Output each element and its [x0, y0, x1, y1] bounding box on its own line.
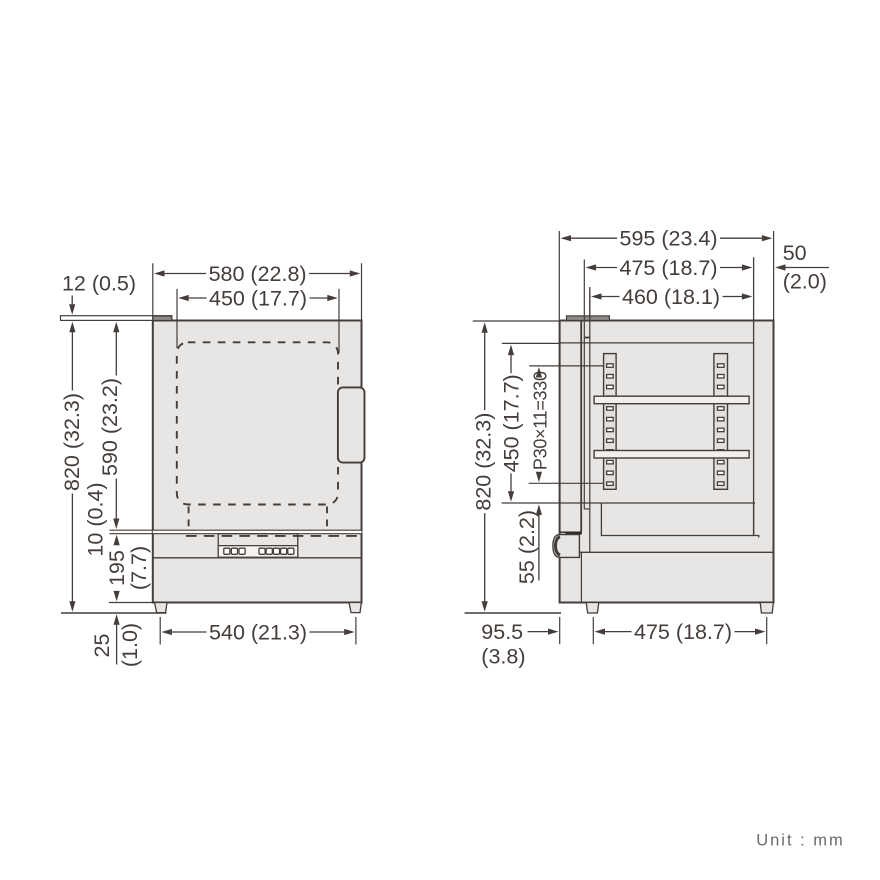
svg-text:475 (18.7): 475 (18.7)	[619, 256, 717, 280]
svg-text:(2.0): (2.0)	[783, 270, 827, 294]
svg-text:475 (18.7): 475 (18.7)	[634, 620, 732, 644]
svg-text:590 (23.2): 590 (23.2)	[98, 378, 122, 476]
svg-text:12 (0.5): 12 (0.5)	[62, 272, 136, 296]
svg-text:Unit : mm: Unit : mm	[756, 832, 845, 850]
svg-text:55 (2.2): 55 (2.2)	[515, 510, 539, 584]
svg-text:820 (32.3): 820 (32.3)	[472, 413, 496, 511]
svg-text:(1.0): (1.0)	[118, 623, 142, 667]
svg-text:(3.8): (3.8)	[481, 645, 525, 669]
svg-text:95.5: 95.5	[481, 620, 523, 644]
svg-text:P30×11=330: P30×11=330	[531, 371, 551, 470]
svg-text:450 (17.7): 450 (17.7)	[209, 286, 307, 310]
svg-text:50: 50	[783, 241, 807, 265]
svg-text:595 (23.4): 595 (23.4)	[619, 227, 717, 251]
svg-text:(7.7): (7.7)	[127, 546, 151, 590]
svg-text:195: 195	[105, 550, 129, 586]
svg-text:580 (22.8): 580 (22.8)	[209, 262, 307, 286]
svg-text:450 (17.7): 450 (17.7)	[499, 374, 523, 472]
svg-text:25: 25	[90, 634, 114, 658]
svg-text:460 (18.1): 460 (18.1)	[622, 285, 720, 309]
svg-text:10 (0.4): 10 (0.4)	[84, 482, 108, 556]
svg-text:540 (21.3): 540 (21.3)	[209, 620, 307, 644]
svg-text:820 (32.3): 820 (32.3)	[60, 393, 84, 491]
